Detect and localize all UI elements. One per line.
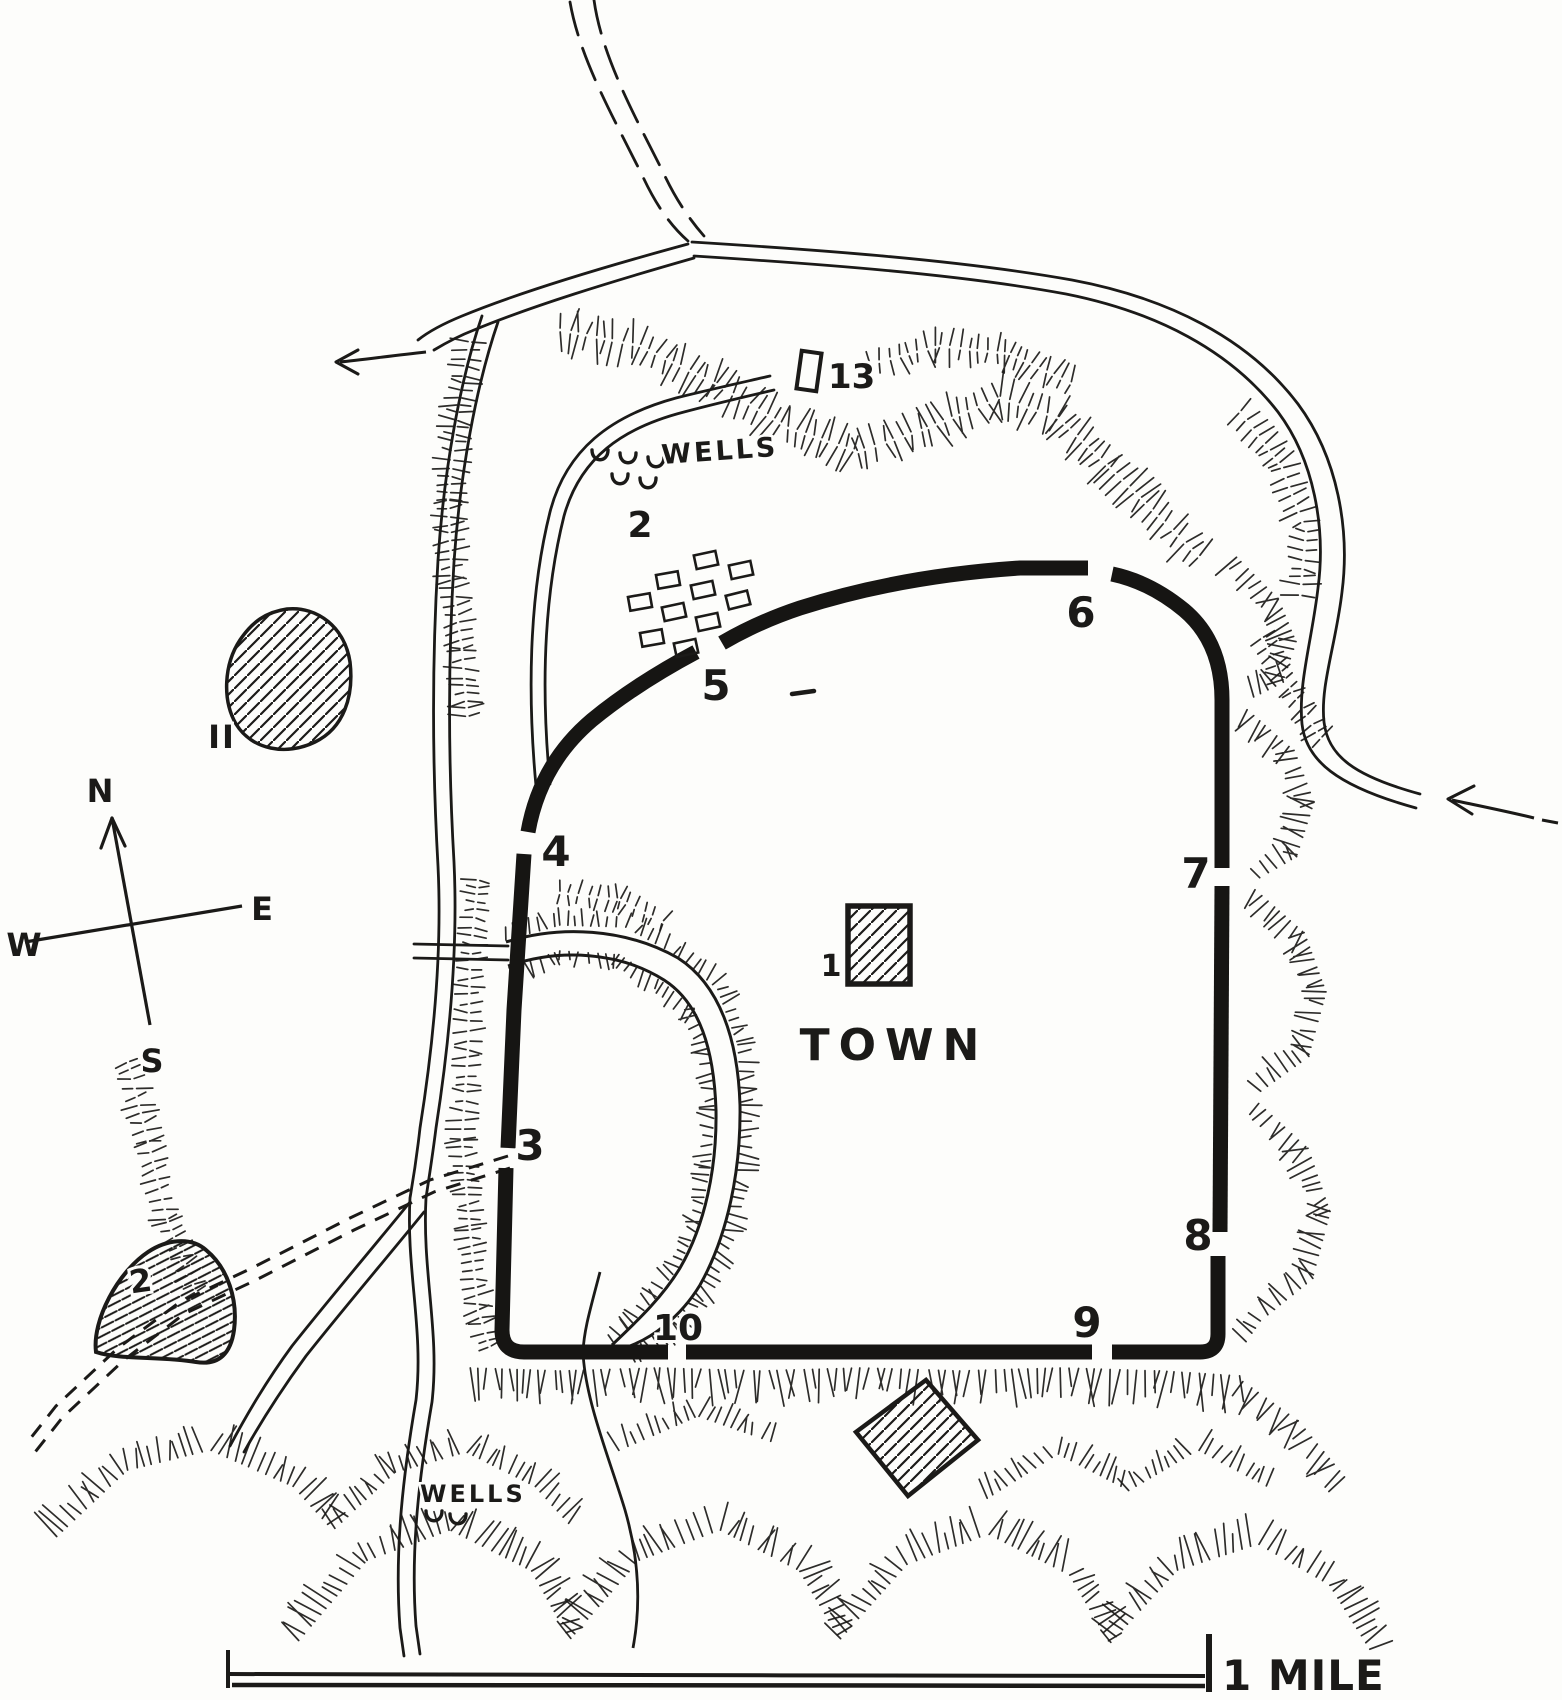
compass-east-label: E — [251, 890, 273, 928]
map-canvas: N E W S II WELLS 2 13 5 6 4 7 3 8 9 10 T… — [0, 0, 1562, 1700]
scale-bar — [228, 1634, 1209, 1692]
wells-lower-label: WELLS — [420, 1480, 526, 1508]
hut-symbol — [640, 629, 664, 647]
gate-7-label: 7 — [1181, 849, 1210, 898]
terrain-hachures-layer — [35, 309, 1393, 1649]
well-symbols — [426, 450, 664, 1524]
gate-4-label: 4 — [541, 827, 570, 876]
gate-3-label: 3 — [515, 1121, 544, 1170]
citadel-number: 1 — [821, 949, 842, 984]
hut-symbol — [691, 581, 715, 599]
map-drawing — [25, 0, 1558, 1692]
well-icon — [640, 478, 656, 488]
gate-10-label: 10 — [653, 1308, 703, 1349]
road-arrows — [336, 350, 1558, 823]
hut-symbol — [694, 551, 718, 569]
hut-symbol — [726, 591, 751, 610]
scale-label: 1 MILE — [1222, 1651, 1385, 1700]
hut-symbol — [729, 561, 753, 579]
gate-6-label: 6 — [1066, 588, 1095, 637]
ruin-13-label: 13 — [828, 357, 875, 397]
compass-west-label: W — [6, 926, 41, 964]
features-layer — [96, 351, 978, 1496]
hut-symbol — [628, 593, 652, 611]
antique-town-plan: N E W S II WELLS 2 13 5 6 4 7 3 8 9 10 T… — [0, 0, 1562, 1700]
gate-5-label: 5 — [701, 661, 730, 710]
compass-north-label: N — [87, 772, 114, 810]
town-label: TOWN — [800, 1020, 989, 1071]
compass-rose — [25, 818, 242, 1025]
compass-south-label: S — [140, 1042, 163, 1080]
well-icon — [620, 453, 636, 463]
wells-upper-label: WELLS — [660, 432, 779, 471]
wells-upper-number: 2 — [627, 505, 652, 546]
hill-11-label: II — [208, 718, 236, 756]
hut-symbol — [662, 603, 686, 621]
gate-8-label: 8 — [1183, 1211, 1212, 1260]
hut-symbol — [696, 613, 720, 631]
well-icon — [612, 474, 628, 484]
hut-symbol — [656, 571, 680, 589]
gate-9-label: 9 — [1072, 1298, 1101, 1347]
